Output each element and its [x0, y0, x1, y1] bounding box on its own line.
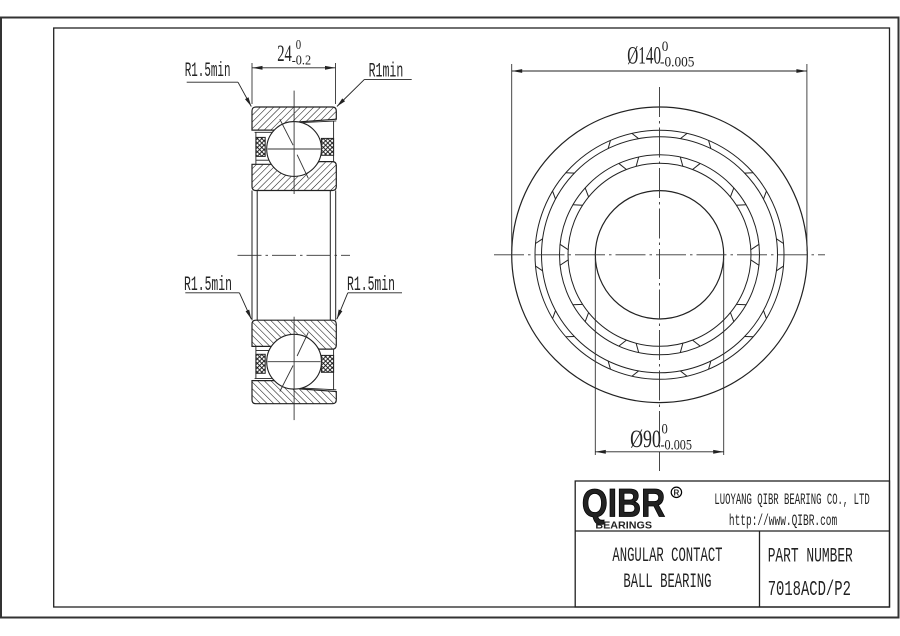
svg-text:24: 24: [277, 41, 292, 66]
svg-text:BEARINGS: BEARINGS: [595, 520, 652, 531]
svg-text:0: 0: [662, 422, 668, 438]
svg-text:BALL BEARING: BALL BEARING: [623, 571, 711, 594]
svg-text:R1.5min: R1.5min: [185, 60, 231, 83]
svg-text:LUOYANG QIBR BEARING CO., LTD: LUOYANG QIBR BEARING CO., LTD: [714, 491, 869, 509]
svg-text:PART NUMBER: PART NUMBER: [768, 545, 853, 568]
svg-text:-0.2: -0.2: [292, 54, 311, 69]
svg-text:QIBR: QIBR: [582, 482, 666, 526]
svg-text:http://www.QIBR.com: http://www.QIBR.com: [729, 512, 837, 530]
svg-text:ANGULAR CONTACT: ANGULAR CONTACT: [612, 545, 722, 568]
svg-text:-0.005: -0.005: [660, 54, 695, 70]
svg-text:R1.5min: R1.5min: [347, 274, 395, 297]
svg-text:Ø140: Ø140: [627, 41, 661, 70]
svg-text:0: 0: [662, 39, 669, 55]
svg-text:R1.5min: R1.5min: [184, 274, 232, 297]
svg-text:R1min: R1min: [369, 61, 404, 84]
svg-text:Ø90: Ø90: [630, 424, 661, 453]
svg-text:-0.005: -0.005: [661, 437, 693, 453]
svg-text:7018ACD/P2: 7018ACD/P2: [768, 579, 851, 602]
svg-text:0: 0: [296, 38, 301, 53]
svg-text:R: R: [674, 488, 680, 497]
